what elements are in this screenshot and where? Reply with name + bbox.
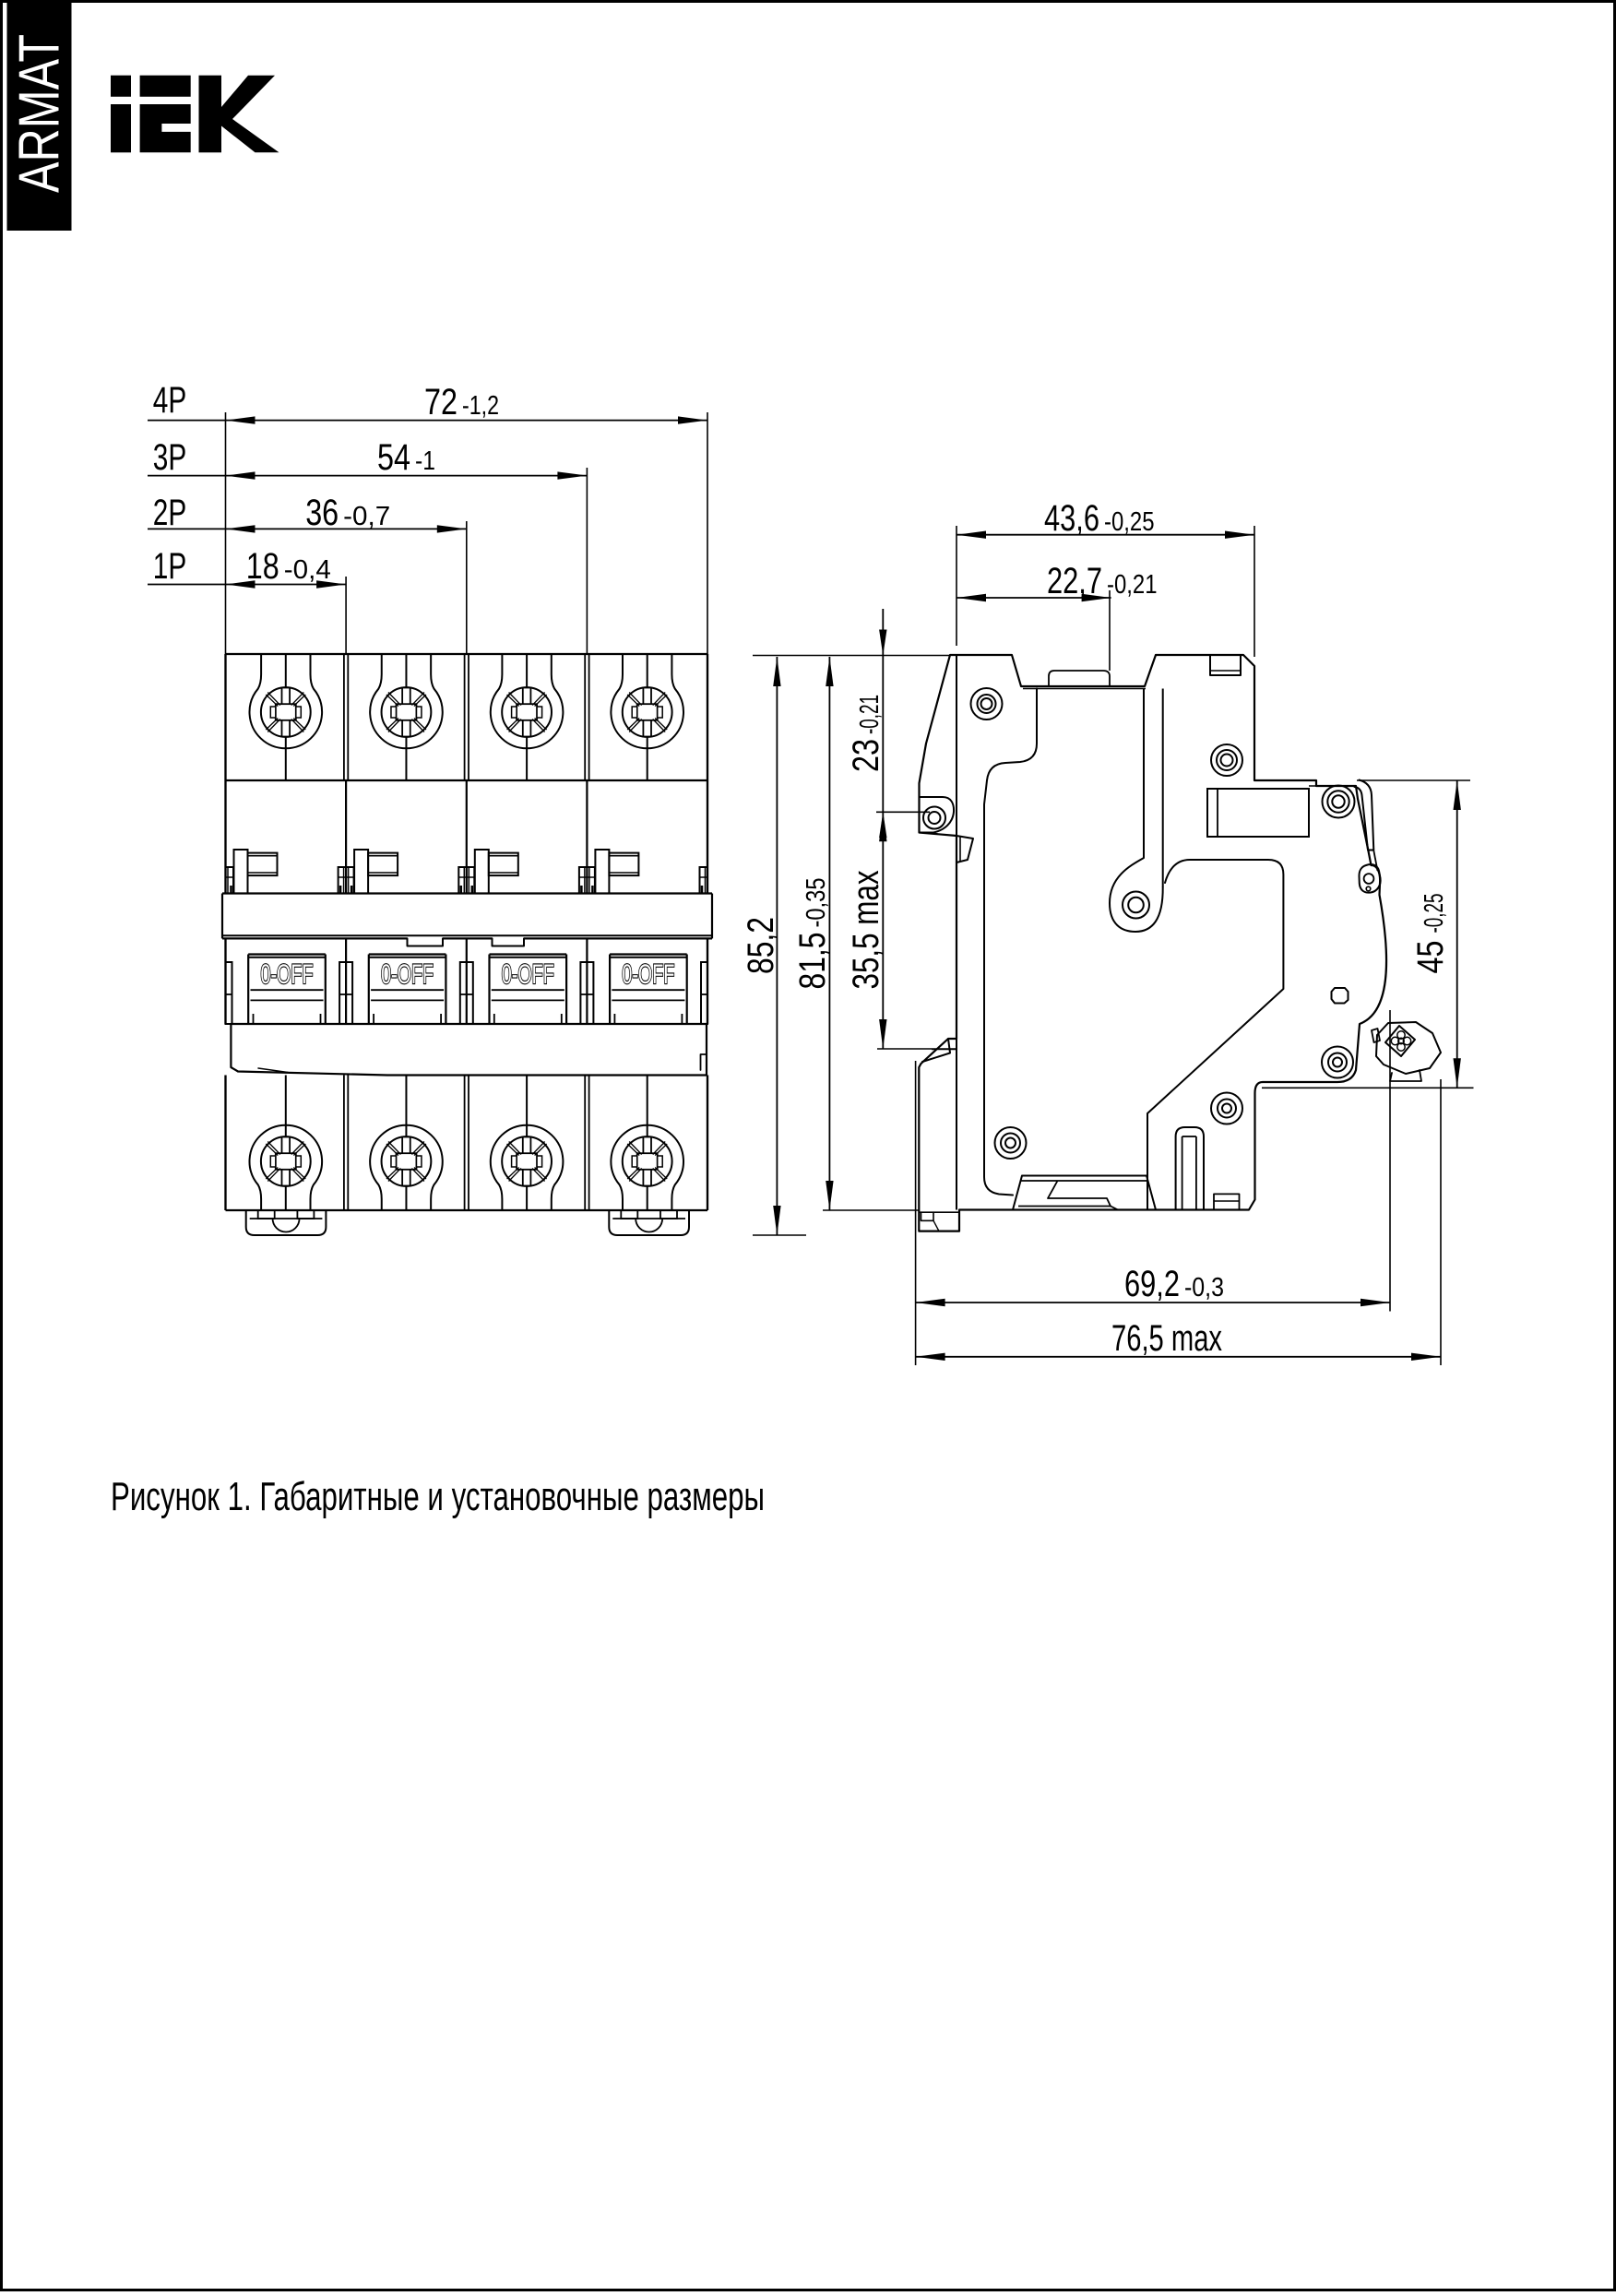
svg-text:1P: 1P xyxy=(153,546,187,587)
svg-text:85,2: 85,2 xyxy=(741,917,781,974)
svg-text:0-OFF: 0-OFF xyxy=(502,959,554,990)
svg-text:4P: 4P xyxy=(153,380,187,421)
svg-text:Рисунок 1. Габаритные и устано: Рисунок 1. Габаритные и установочные раз… xyxy=(111,1474,765,1519)
svg-text:ARMAT: ARMAT xyxy=(8,34,72,193)
svg-text:3P: 3P xyxy=(153,437,187,478)
svg-text:76,5 max: 76,5 max xyxy=(1111,1318,1222,1359)
svg-text:0-OFF: 0-OFF xyxy=(381,959,434,990)
svg-text:2P: 2P xyxy=(153,493,187,533)
svg-text:0-OFF: 0-OFF xyxy=(261,959,314,990)
svg-text:35,5 max: 35,5 max xyxy=(846,871,886,990)
svg-text:0-OFF: 0-OFF xyxy=(622,959,674,990)
